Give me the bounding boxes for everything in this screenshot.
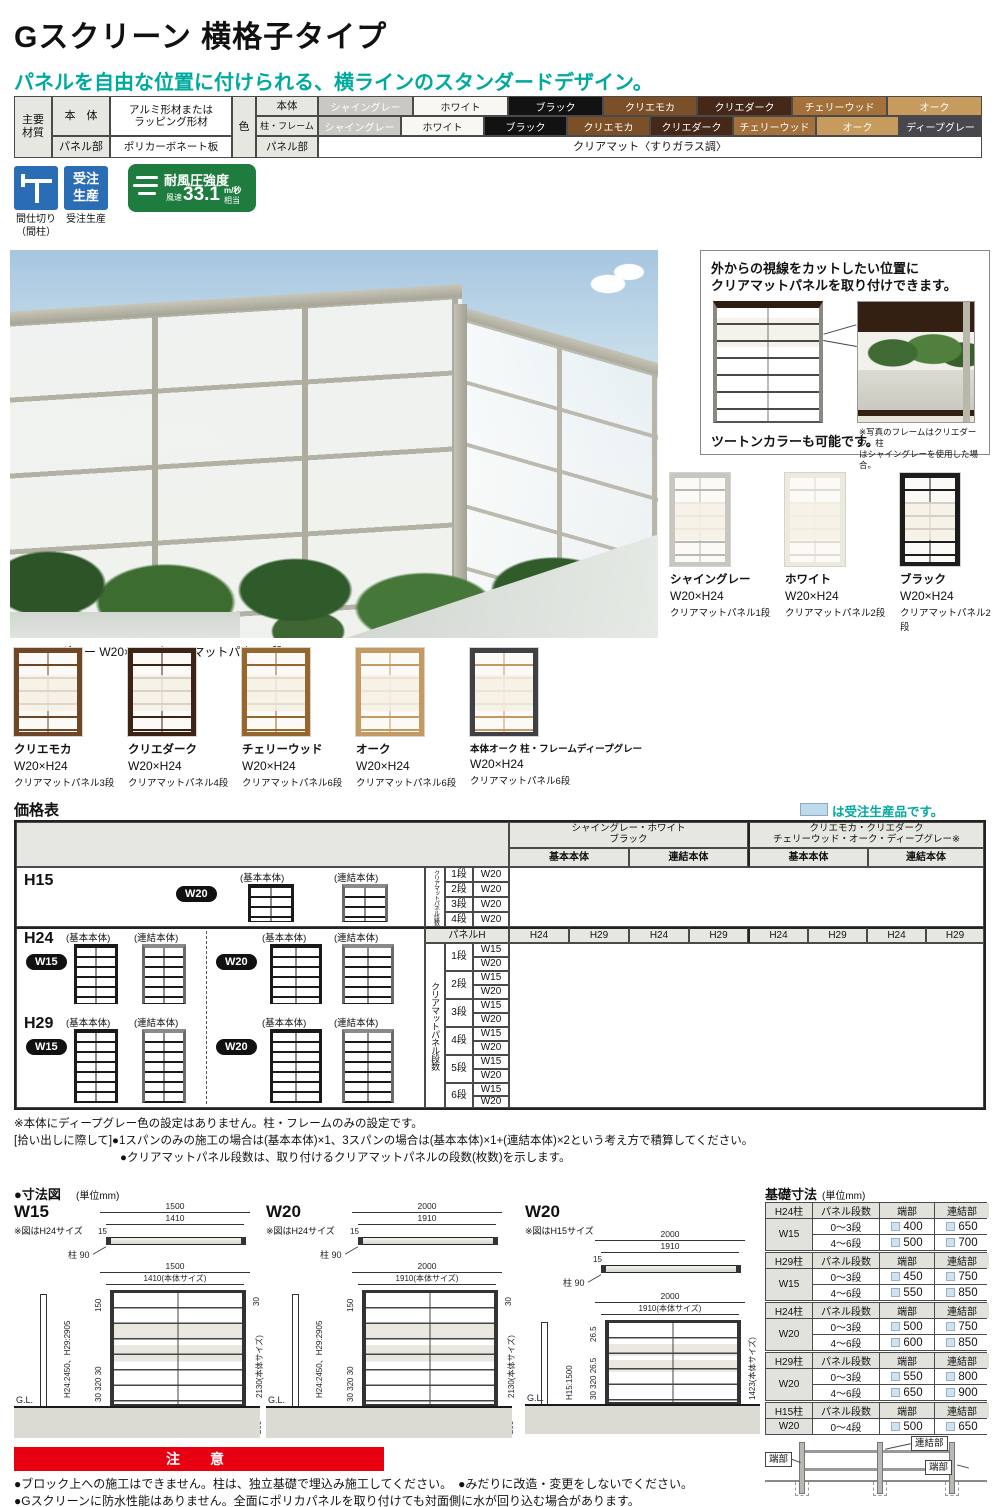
foundation-cell: 400	[880, 1219, 934, 1234]
callout-photo-rail	[858, 410, 974, 416]
order-square-icon	[946, 1338, 955, 1347]
foundation-cell: 500	[880, 1319, 934, 1334]
wind-resistance-badge: 耐風圧強度 風速 33.1 m/秒 相当	[128, 164, 256, 212]
variation-card: クリエモカ W20×H24 クリアマットパネル3段	[14, 648, 124, 789]
foundation-value: 800	[958, 1371, 977, 1383]
panel-width-cell: W15	[473, 999, 509, 1013]
order-square-icon	[946, 1372, 955, 1381]
page-title: Gスクリーン 横格子タイプ	[14, 12, 387, 56]
variation-panel: クリアマットパネル6段	[242, 775, 354, 789]
variation-card: ホワイト W20×H24 クリアマットパネル2段	[785, 473, 885, 619]
diagram-caption: (連結本体)	[334, 870, 378, 884]
partition-icon	[14, 166, 58, 210]
mini-fence-diagram	[270, 1029, 322, 1103]
panel-count-cell: 2段	[445, 882, 473, 897]
drawing-note: ※図はH15サイズ	[525, 1224, 594, 1237]
foundation-cell: H15柱	[766, 1403, 812, 1418]
material-row-value: ポリカーボネート板	[110, 136, 232, 158]
mini-fence-diagram	[342, 1029, 394, 1103]
ground-level-label: G.L.	[527, 1393, 544, 1403]
drawing-note: ※図はH24サイズ	[14, 1224, 83, 1237]
foundation-title: 基礎寸法	[765, 1184, 817, 1203]
color-chip: シャイングレー	[318, 116, 401, 136]
panel-width-cell: W20	[473, 985, 509, 999]
panel-count-cell: 3段	[445, 897, 473, 912]
price-col-link: 連結本体	[629, 848, 748, 867]
order-square-icon	[946, 1238, 955, 1247]
panel-width-cell: W20	[473, 1041, 509, 1055]
foundation-cell: パネル段数	[813, 1253, 879, 1268]
price-table: シャイングレー・ホワイト ブラック クリエモカ・クリエダーク チェリーウッド・オ…	[14, 820, 986, 1110]
panel-width-cell: W15	[473, 1027, 509, 1041]
catalog-page: Gスクリーン 横格子タイプ パネルを自由な位置に付けられる、横ラインのスタンダー…	[0, 0, 1000, 1507]
variation-panel: クリアマットパネル1段	[670, 605, 770, 619]
dim-drawing-w20-h15: W20 ※図はH15サイズ 2000 1910 15 柱 90 2000 191…	[525, 1202, 760, 1442]
foundation-table: H15柱 パネル段数 端部 連結部 W20 0～4段 500 650	[765, 1402, 987, 1435]
foundation-cell: W20	[766, 1369, 812, 1400]
diagram-caption: (基本本体)	[262, 930, 306, 944]
variation-card: ブラック W20×H24 クリアマットパネル2段	[900, 473, 1000, 633]
variation-name: クリエモカ	[14, 741, 124, 757]
foundation-cell: 700	[935, 1235, 989, 1250]
foundation-cell: 650	[935, 1219, 989, 1234]
panel-count-cell: 1段	[445, 867, 473, 882]
diagram-caption: (基本本体)	[262, 1015, 306, 1029]
w-size-tag: W20	[216, 954, 257, 970]
color-chip: クリエモカ	[603, 96, 697, 116]
price-col-group2: クリエモカ・クリエダーク チェリーウッド・オーク・ディープグレー※	[748, 822, 984, 848]
price-h-col: H29	[689, 927, 748, 943]
foundation-table: H29柱 パネル段数 端部 連結部 W20 0～3段 550 800 4～6段 …	[765, 1352, 987, 1401]
variation-size: W20×H24	[900, 589, 1000, 603]
fence-front-view	[362, 1290, 498, 1406]
variation-image	[14, 648, 82, 736]
foundation-cell: 650	[880, 1385, 934, 1400]
wind-suffix: 相当	[224, 195, 240, 206]
price-h-col: H29	[808, 927, 867, 943]
mini-fence-diagram	[248, 884, 294, 922]
price-header-blank	[16, 822, 509, 867]
foundation-cell: パネル段数	[813, 1303, 879, 1318]
dim-label: H15:1500	[565, 1365, 574, 1400]
foundation-cell: 端部	[880, 1303, 934, 1318]
callout-photo-panel	[858, 370, 974, 410]
order-legend-text: は受注生産品です。	[832, 801, 943, 820]
variation-name: クリエダーク	[128, 741, 238, 757]
foundation-value: 750	[958, 1271, 977, 1283]
foundation-cell: 850	[935, 1335, 989, 1350]
mini-fence-diagram	[342, 944, 394, 1004]
dim-label: 1910(本体サイズ)	[358, 1274, 496, 1285]
spec-h24-label: H24	[24, 930, 53, 948]
variation-image	[670, 473, 730, 566]
w-size-tag: W15	[26, 1039, 67, 1055]
order-square-icon	[891, 1372, 900, 1381]
foundation-value: 500	[903, 1321, 922, 1333]
foundation-cell: 連結部	[935, 1403, 989, 1418]
dim-label: H24:2450、H29:2905	[62, 1321, 73, 1398]
dim-label: 150	[346, 1299, 355, 1312]
foundation-cell: 0～3段	[813, 1269, 879, 1284]
foundation-cell: 端部	[880, 1353, 934, 1368]
variation-size: W20×H24	[670, 589, 770, 603]
color-chip: ホワイト	[413, 96, 508, 116]
dim-label: 30	[252, 1297, 261, 1306]
foundation-cell: 端部	[880, 1403, 934, 1418]
foundation-value: 650	[958, 1221, 977, 1233]
group2-line2: チェリーウッド・オーク・ディープグレー※	[773, 835, 960, 846]
panel-width-cell: W15	[473, 971, 509, 985]
mini-fence-diagram	[270, 944, 322, 1004]
fence-plan-view	[106, 1237, 246, 1245]
caution-note: ●ブロック上への施工はできません。柱は、独立基礎で埋込み施工してください。 ●み…	[14, 1476, 974, 1493]
panel-width-cell: W20	[473, 1069, 509, 1083]
dim-label: 2000	[595, 1230, 745, 1241]
foundation-cell: 4～6段	[813, 1235, 879, 1250]
variation-panel: クリアマットパネル2段	[900, 605, 1000, 633]
panel-count-cell: 1段	[445, 943, 473, 971]
foundation-value: 650	[903, 1387, 922, 1399]
callout-right-caption: ※写真のフレームはクリエダーク、柱 はシャイングレーを使用した場合。	[859, 427, 989, 471]
dims-unit: (単位mm)	[76, 1187, 119, 1202]
price-col-group1: シャイングレー・ホワイト ブラック	[509, 822, 748, 848]
mini-fence-diagram	[74, 944, 118, 1004]
fence-plan-view	[601, 1265, 741, 1273]
order-square-icon	[891, 1238, 900, 1247]
price-h-col: H24	[867, 927, 926, 943]
drawing-note: ※図はH24サイズ	[266, 1224, 335, 1237]
fence-plan-view	[358, 1237, 498, 1245]
variation-size: W20×H24	[242, 759, 354, 773]
dims-title: ●寸法図	[14, 1184, 61, 1203]
foundation-cell: H24柱	[766, 1203, 812, 1218]
ground-hatch	[266, 1406, 512, 1438]
foundation-cell: 0～3段	[813, 1319, 879, 1334]
panel-width-cell: W20	[473, 1013, 509, 1027]
color-chip: ブラック	[508, 96, 603, 116]
dim-label: 2130(本体サイズ)	[506, 1335, 517, 1398]
spec-divider	[206, 931, 207, 1104]
order-square-icon	[891, 1222, 900, 1231]
foundation-value: 600	[903, 1337, 922, 1349]
foundation-cell: パネル段数	[813, 1203, 879, 1218]
variation-panel: クリアマットパネル2段	[785, 605, 885, 619]
color-row-value: クリアマット〈すりガラス調〉	[318, 136, 982, 158]
fence-front-view	[110, 1290, 246, 1406]
foundation-cell: 550	[880, 1285, 934, 1300]
dim-label: 2000	[352, 1202, 502, 1213]
leader-line	[957, 1464, 969, 1468]
foundation-cell: 0～4段	[813, 1419, 879, 1434]
foundation-value: 550	[903, 1371, 922, 1383]
foundation-cell: 連結部	[935, 1203, 989, 1218]
variation-card: クリエダーク W20×H24 クリアマットパネル4段	[128, 648, 238, 789]
color-chip: チェリーウッド	[792, 96, 887, 116]
diagram-caption: (連結本体)	[334, 1015, 378, 1029]
dim-label: 15	[593, 1255, 602, 1264]
color-chip: ディープグレー	[899, 116, 982, 136]
order-square-icon	[946, 1288, 955, 1297]
diagram-caption: (連結本体)	[134, 1015, 178, 1029]
foundation-value: 850	[958, 1287, 977, 1299]
variation-size: W20×H24	[14, 759, 124, 773]
spec-h15-label: H15	[24, 872, 53, 890]
foundation-cell: 4～6段	[813, 1335, 879, 1350]
paving	[10, 612, 240, 638]
dim-label: H24:2450、H29:2905	[314, 1321, 325, 1398]
variation-size: W20×H24	[785, 589, 885, 603]
variation-name: 本体オーク 柱・フレームディープグレー	[470, 741, 660, 755]
callout-box: 外からの視線をカットしたい位置に クリアマットパネルを取り付けできます。 ツート…	[700, 250, 990, 455]
dim-label: 1423(本体サイズ)	[747, 1337, 758, 1400]
diagram-rail	[805, 1468, 877, 1471]
panel-width-cell: W20	[473, 867, 509, 882]
foundation-value: 500	[903, 1421, 922, 1433]
post-label: 柱 90	[563, 1276, 585, 1289]
color-chip: クリエダーク	[650, 116, 733, 136]
wind-icon	[138, 192, 156, 195]
variation-panel: クリアマットパネル6段	[356, 775, 466, 789]
price-col-link: 連結本体	[868, 848, 984, 867]
foundation-cell: 900	[935, 1385, 989, 1400]
diagram-rail	[805, 1450, 877, 1453]
diagram-caption: (基本本体)	[66, 930, 110, 944]
leader-line	[588, 1274, 601, 1282]
price-note: [拾い出しに際して]●1スパンのみの施工の場合は(基本本体)×1、3スパンの場合…	[14, 1133, 974, 1150]
dim-label: 15	[350, 1227, 359, 1236]
foundation-cell: W20	[766, 1319, 812, 1350]
callout-photo	[857, 301, 975, 423]
color-chip: クリエモカ	[567, 116, 650, 136]
dim-label: 15	[98, 1227, 107, 1236]
post-label: 柱 90	[320, 1248, 342, 1261]
dim-label: 1910(本体サイズ)	[601, 1304, 739, 1315]
color-chip: ブラック	[484, 116, 567, 136]
foundation-cell: 850	[935, 1285, 989, 1300]
dim-label: 1500	[100, 1202, 250, 1213]
price-empty-cell	[509, 867, 984, 927]
variation-size: W20×H24	[128, 759, 238, 773]
price-empty-cell	[509, 943, 984, 1108]
panel-width-cell: W20	[473, 1096, 509, 1108]
group1-line2: ブラック	[609, 835, 647, 846]
w-size-tag: W20	[216, 1039, 257, 1055]
foundation-cell: 550	[880, 1369, 934, 1384]
foundation-cell: 連結部	[935, 1253, 989, 1268]
foundation-cell: W15	[766, 1269, 812, 1300]
panel-count-cell: 5段	[445, 1055, 473, 1083]
panel-count-cell: 2段	[445, 971, 473, 999]
callout-diagram	[713, 301, 823, 423]
drawing-label: W20	[266, 1202, 301, 1222]
price-h-col: H29	[569, 927, 629, 943]
foundation-cell: W20	[766, 1419, 812, 1434]
spec-h29-label: H29	[24, 1015, 53, 1033]
foundation-table: H24柱 パネル段数 端部 連結部 W15 0～3段 400 650 4～6段 …	[765, 1202, 987, 1251]
variation-name: ホワイト	[785, 571, 885, 587]
foundation-cell: 端部	[880, 1203, 934, 1218]
materials-table: 主要 材質 本 体 アルミ形材または ラッピング形材 パネル部 ポリカーボネート…	[14, 96, 986, 158]
diagram-caption: (基本本体)	[240, 870, 284, 884]
dim-label: 1410(本体サイズ)	[106, 1274, 244, 1285]
variation-size: W20×H24	[356, 759, 466, 773]
material-row-label: パネル部	[52, 136, 110, 158]
ground-level-label: G.L.	[268, 1395, 285, 1405]
variation-image	[900, 473, 960, 566]
foundation-unit: (単位mm)	[822, 1187, 865, 1202]
panel-width-cell: W15	[473, 1055, 509, 1069]
foundation-table: H24柱 パネル段数 端部 連結部 W20 0～3段 500 750 4～6段 …	[765, 1302, 987, 1351]
dim-label: 2130(本体サイズ)	[254, 1335, 265, 1398]
dim-drawing-w20: W20 ※図はH24サイズ 2000 1910 15 柱 90 2000 191…	[266, 1202, 512, 1442]
variation-card: オーク W20×H24 クリアマットパネル6段	[356, 648, 466, 789]
panel-width-cell: W20	[473, 897, 509, 912]
color-chip: シャイングレー	[318, 96, 413, 116]
variation-card: チェリーウッド W20×H24 クリアマットパネル6段	[242, 648, 354, 789]
price-note: ●クリアマットパネル段数は、取り付けるクリアマットパネルの段数(枚数)を示します…	[120, 1150, 980, 1167]
mini-fence-diagram	[142, 944, 186, 1004]
diagram-label-end: 端部	[925, 1460, 952, 1475]
wind-icon	[133, 184, 158, 187]
material-row-value: アルミ形材または ラッピング形材	[110, 96, 232, 136]
callout-text-line2: クリアマットパネルを取り付けできます。	[711, 275, 957, 294]
drawing-label: W15	[14, 1202, 49, 1222]
foundation-value: 700	[958, 1237, 977, 1249]
foundation-cell: 800	[935, 1369, 989, 1384]
product-photo	[10, 250, 658, 638]
foundation-value: 500	[903, 1237, 922, 1249]
materials-header: 主要 材質	[14, 96, 52, 158]
variation-panel: クリアマットパネル6段	[470, 773, 660, 787]
mini-fence-diagram	[342, 884, 388, 922]
drawing-label: W20	[525, 1202, 560, 1222]
foundation-cell: 連結部	[935, 1303, 989, 1318]
w-size-tag: W20	[176, 886, 217, 902]
foundation-value: 400	[903, 1221, 922, 1233]
variation-panel: クリアマットパネル3段	[14, 775, 124, 789]
leader-line	[93, 1246, 106, 1254]
foundation-value: 850	[958, 1337, 977, 1349]
ground-hatch	[14, 1406, 260, 1438]
foundation-cell: 450	[880, 1269, 934, 1284]
order-square-icon	[891, 1288, 900, 1297]
panel-count-cell: 4段	[445, 912, 473, 927]
dim-label: 1910	[358, 1214, 496, 1225]
color-chip: ホワイト	[401, 116, 484, 136]
panel-count-cell: 6段	[445, 1083, 473, 1108]
callout-left-caption: ツートンカラーも可能です。	[711, 431, 879, 450]
panel-count-vertical-label: クリアマットパネル段数	[425, 867, 445, 927]
panel-width-cell: W20	[473, 957, 509, 971]
variation-card: シャイングレー W20×H24 クリアマットパネル1段	[670, 473, 770, 619]
foundation-cell: H29柱	[766, 1253, 812, 1268]
order-square-icon	[946, 1422, 955, 1431]
panel-width-cell: W15	[473, 943, 509, 957]
order-square-icon	[891, 1422, 900, 1431]
panel-count-cell: 4段	[445, 1027, 473, 1055]
ground-level-label: G.L.	[16, 1395, 33, 1405]
callout-photo-post	[963, 302, 970, 422]
variation-image	[356, 648, 424, 736]
caution-note: ●Gスクリーンに防水性能はありません。全面にポリカパネルを取り付けても対面側に水…	[14, 1493, 974, 1507]
partition-icon-stem	[35, 183, 39, 203]
wind-prefix: 風速	[166, 192, 182, 203]
cloud	[580, 260, 650, 300]
foundation-table: H29柱 パネル段数 端部 連結部 W15 0～3段 450 750 4～6段 …	[765, 1252, 987, 1301]
color-chip: クリエダーク	[697, 96, 792, 116]
diagram-label-link: 連結部	[911, 1436, 948, 1451]
color-row-label: 本体	[256, 96, 318, 116]
order-square-icon	[891, 1338, 900, 1347]
dim-label: 1410	[106, 1214, 244, 1225]
material-row-label: 本 体	[52, 96, 110, 136]
foundation-cell: 600	[880, 1335, 934, 1350]
order-legend-swatch	[800, 803, 828, 816]
mini-fence-diagram	[74, 1029, 118, 1103]
foundation-cell: H29柱	[766, 1353, 812, 1368]
panel-width-cell: W20	[473, 912, 509, 927]
order-square-icon	[946, 1388, 955, 1397]
variation-card: 本体オーク 柱・フレームディープグレー W20×H24 クリアマットパネル6段	[470, 648, 660, 787]
callout-photo-plants	[858, 332, 974, 370]
panel-width-cell: W20	[473, 882, 509, 897]
color-chip: チェリーウッド	[733, 116, 816, 136]
diagram-label-end: 端部	[765, 1452, 792, 1467]
dim-label: 30 320 26.5	[589, 1358, 598, 1400]
leader-line	[345, 1246, 358, 1254]
order-square-icon	[946, 1322, 955, 1331]
foundation-value: 900	[958, 1387, 977, 1399]
order-square-icon	[891, 1388, 900, 1397]
price-col-basic: 基本本体	[509, 848, 629, 867]
foundation-cell: 500	[880, 1235, 934, 1250]
color-row-label: 柱・フレーム	[256, 116, 318, 136]
price-h-col: H24	[629, 927, 689, 943]
color-header: 色	[232, 96, 256, 158]
foundation-value: 450	[903, 1271, 922, 1283]
price-h-col: H24	[509, 927, 569, 943]
dim-label: 2000	[352, 1262, 502, 1273]
order-square-icon	[946, 1222, 955, 1231]
foundation-cell: パネル段数	[813, 1353, 879, 1368]
variation-image	[242, 648, 310, 736]
foundation-cell: 750	[935, 1269, 989, 1284]
color-chip: オーク	[887, 96, 982, 116]
foundation-value: 650	[958, 1421, 977, 1433]
foundation-cell: 750	[935, 1319, 989, 1334]
variation-image	[470, 648, 538, 736]
variation-image	[785, 473, 845, 566]
w-size-tag: W15	[26, 954, 67, 970]
diagram-caption: (基本本体)	[66, 1015, 110, 1029]
foundation-cell: H24柱	[766, 1303, 812, 1318]
foundation-cell: 0～3段	[813, 1369, 879, 1384]
dim-label: 30 320 30	[346, 1366, 355, 1402]
wind-icon	[136, 176, 158, 179]
price-h-col: H29	[926, 927, 984, 943]
foundation-cell: W15	[766, 1219, 812, 1250]
foundation-cell: 650	[935, 1419, 989, 1434]
dim-drawing-w15: W15 ※図はH24サイズ 1500 1410 15 柱 90 1500 141…	[14, 1202, 260, 1442]
foundation-value: 550	[903, 1287, 922, 1299]
order-square-icon	[946, 1272, 955, 1281]
made-to-order-caption: 受注生産	[60, 214, 112, 227]
panel-count-cell: 3段	[445, 999, 473, 1027]
price-title: 価格表	[14, 799, 59, 820]
variation-name: オーク	[356, 741, 466, 757]
dim-label: 1910	[601, 1242, 739, 1253]
dim-label: 30 320 30	[94, 1366, 103, 1402]
